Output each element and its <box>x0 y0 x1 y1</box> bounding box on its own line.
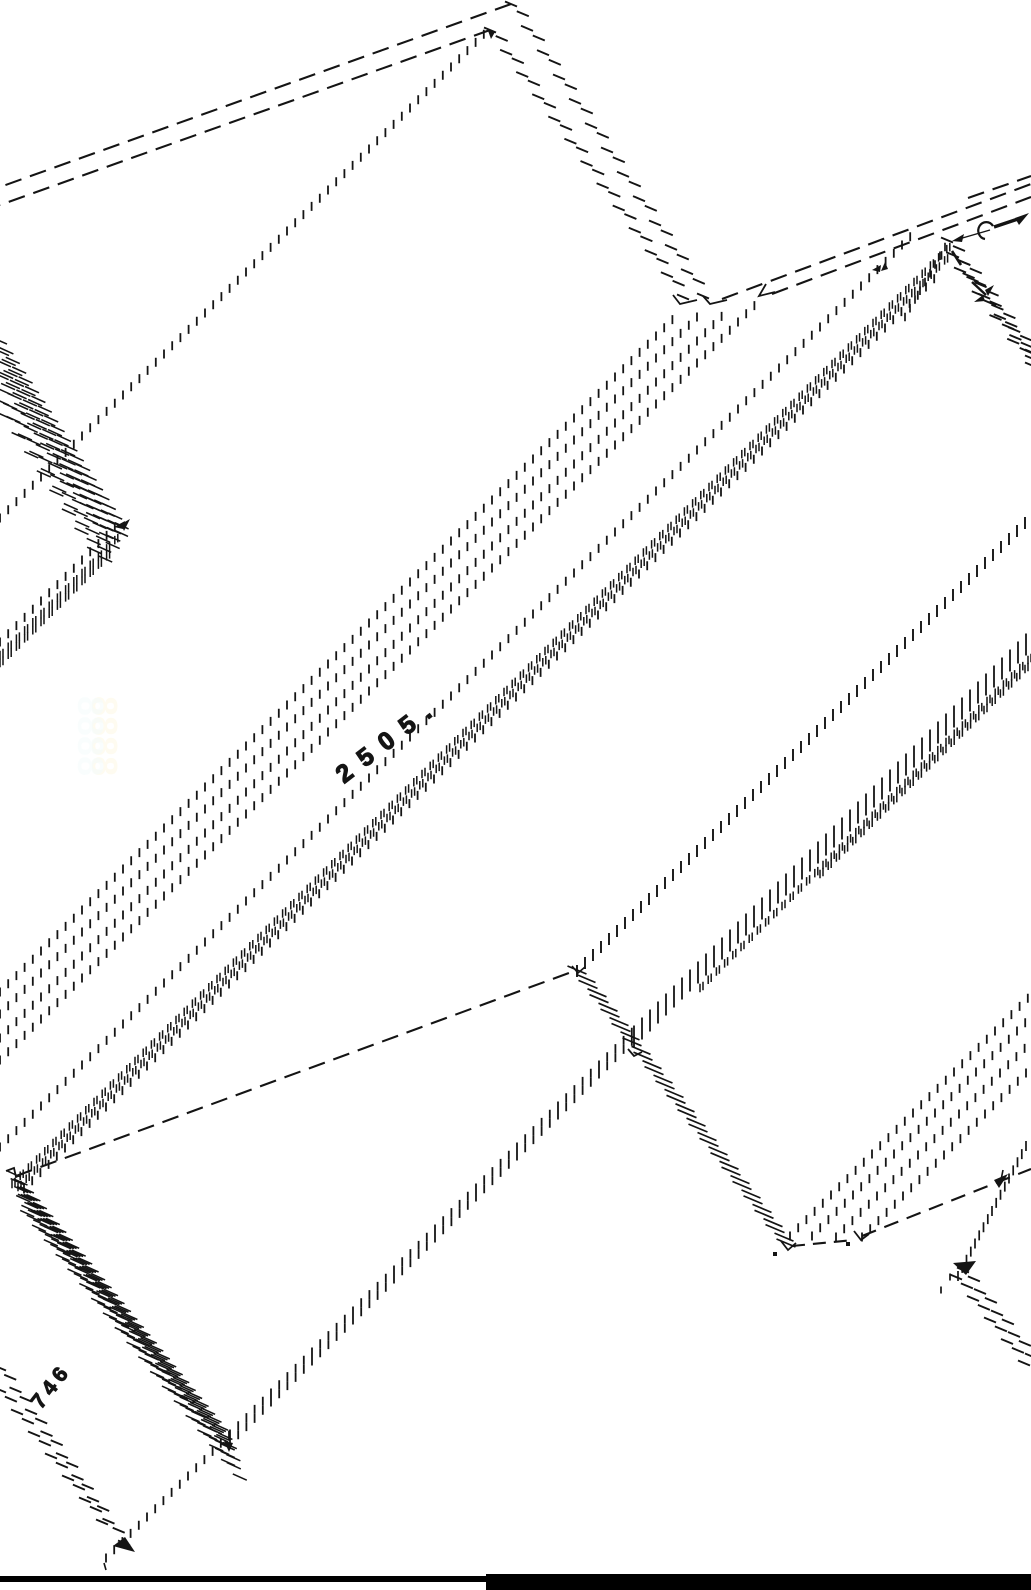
svg-text:8888: 8888 <box>70 696 111 776</box>
